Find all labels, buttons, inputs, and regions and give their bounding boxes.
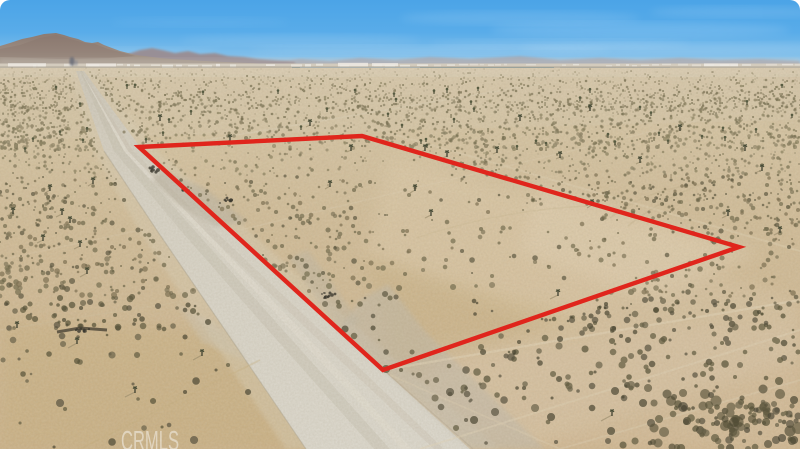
svg-text:CRMLS: CRMLS [121, 425, 179, 449]
